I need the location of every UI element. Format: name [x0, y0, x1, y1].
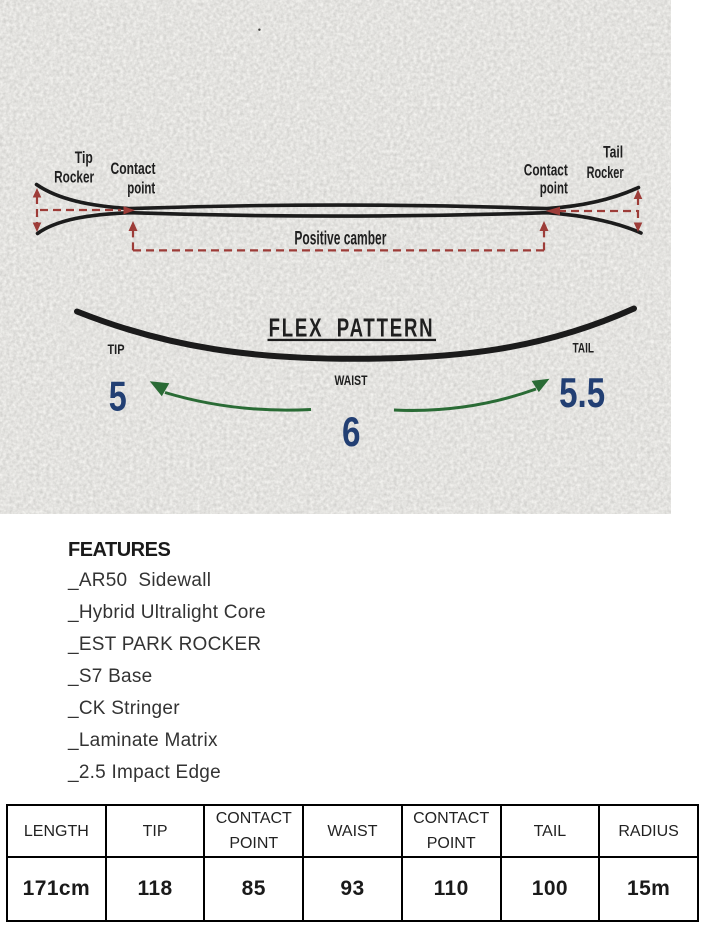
- svg-text:Rocker: Rocker: [587, 163, 624, 182]
- svg-text:point: point: [127, 179, 155, 198]
- svg-text:6: 6: [342, 408, 361, 455]
- svg-text:Tip: Tip: [75, 148, 93, 167]
- svg-text:TIP: TIP: [108, 341, 125, 357]
- svg-text:Contact: Contact: [524, 160, 568, 179]
- svg-text:Tail: Tail: [603, 143, 623, 162]
- svg-text:WAIST: WAIST: [335, 372, 368, 388]
- svg-text:point: point: [540, 179, 568, 198]
- svg-text:Contact: Contact: [111, 159, 156, 178]
- svg-text:FLEX PATTERN: FLEX PATTERN: [269, 313, 435, 342]
- svg-text:5: 5: [109, 373, 127, 420]
- svg-text:TAIL: TAIL: [573, 339, 595, 355]
- svg-text:Rocker: Rocker: [54, 168, 94, 187]
- svg-text:Positive camber: Positive camber: [294, 228, 386, 249]
- svg-text:5.5: 5.5: [559, 369, 605, 416]
